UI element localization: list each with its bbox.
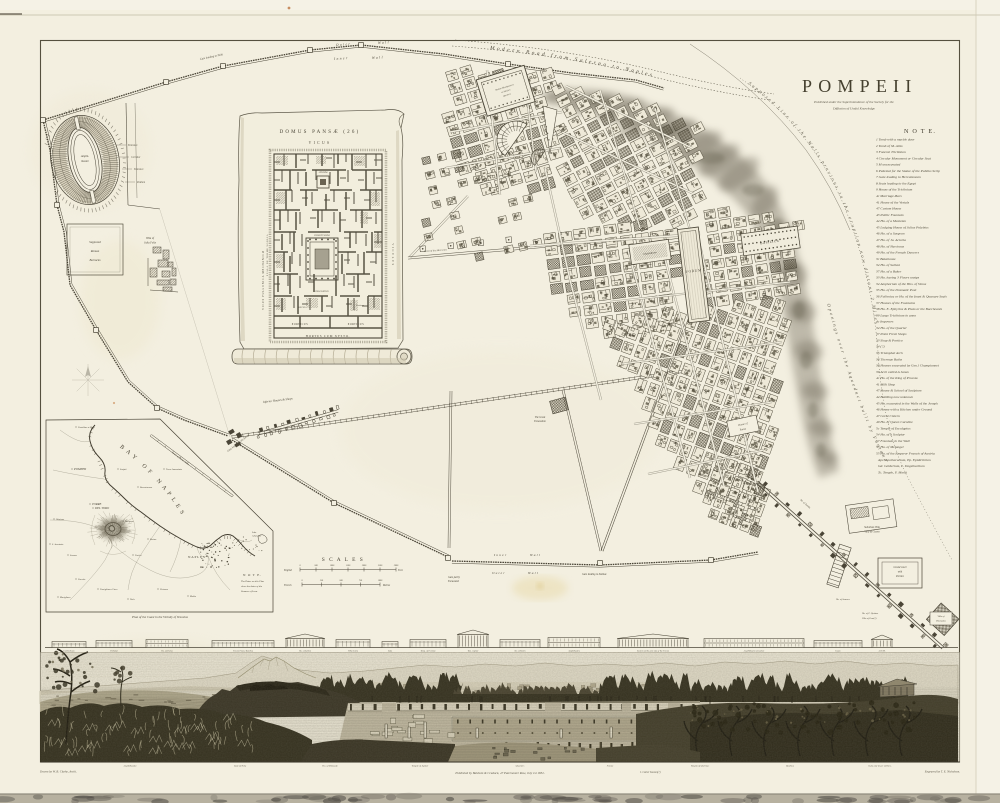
- svg-text:Posticum: Posticum: [355, 304, 365, 307]
- svg-text:theatre: theatre: [81, 160, 90, 163]
- svg-text:Somma: Somma: [70, 555, 78, 557]
- svg-text:Inner: Inner: [493, 553, 507, 557]
- svg-text:Villa of Cont(?): Villa of Cont(?): [862, 617, 877, 620]
- svg-text:Gate leading to Stabiae: Gate leading to Stabiae: [582, 573, 607, 576]
- svg-text:The Great: The Great: [535, 416, 546, 419]
- svg-text:Lake: Lake: [251, 532, 256, 534]
- svg-text:35 Triumphal Arch: 35 Triumphal Arch: [876, 351, 903, 355]
- svg-text:Temple of Jupiter: Temple of Jupiter: [412, 765, 429, 768]
- svg-text:N O T E.: N O T E.: [904, 128, 936, 135]
- svg-text:NAPLES: NAPLES: [188, 555, 206, 559]
- svg-text:Villa of: Villa of: [146, 237, 155, 240]
- svg-text:Gate of Nola: Gate of Nola: [234, 765, 247, 768]
- svg-text:VICUS: VICUS: [309, 141, 332, 145]
- svg-text:Ho. of Diomede: Ho. of Diomede: [321, 765, 337, 768]
- svg-text:Streams of Lava.: Streams of Lava.: [241, 590, 258, 593]
- svg-text:Excavated: Excavated: [447, 580, 460, 583]
- svg-text:38 Ho. E. Ephyrins & Plato or: 38 Ho. E. Ephyrins & Plato or the Bacche…: [876, 307, 943, 311]
- svg-text:34 (?): 34 (?): [876, 345, 885, 349]
- svg-text:Amphi-: Amphi-: [80, 155, 89, 158]
- svg-text:Melito: Melito: [189, 595, 197, 598]
- svg-text:SCALA DE TERME SOGLIA: SCALA DE TERME SOGLIA: [266, 234, 269, 276]
- svg-text:DOMUS PANSÆ (26): DOMUS PANSÆ (26): [280, 130, 361, 135]
- svg-text:Basilica: Basilica: [786, 765, 795, 768]
- svg-text:ATRIUM: ATRIUM: [319, 171, 328, 174]
- svg-text:47 Great Cistern: 47 Great Cistern: [876, 414, 900, 418]
- svg-text:46 Ho. of a Surgeon: 46 Ho. of a Surgeon: [876, 232, 905, 236]
- svg-text:Portico: Portico: [895, 575, 904, 578]
- svg-text:French: French: [283, 584, 292, 587]
- svg-text:34 Amphorium of the Hos. of Ve: 34 Amphorium of the Hos. of Venus: [876, 282, 927, 286]
- svg-text:N O T E.: N O T E.: [243, 573, 262, 577]
- svg-text:36 Fullonica or Ho. of the fou: 36 Fullonica or Ho. of the fount & Quana…: [876, 295, 947, 299]
- svg-text:Metres: Metres: [382, 584, 390, 587]
- svg-text:Julia Felix: Julia Felix: [144, 242, 157, 245]
- svg-text:48 Ho. of Narcissus: 48 Ho. of Narcissus: [876, 244, 905, 248]
- svg-text:46 House with a Kitchen under: 46 House with a Kitchen under Ground: [876, 408, 932, 412]
- svg-text:Excavation: Excavation: [533, 420, 546, 423]
- svg-text:English: English: [283, 569, 293, 572]
- svg-text:44 Building now unknown: 44 Building now unknown: [876, 395, 913, 399]
- svg-text:44 Ho. of a Musician: 44 Ho. of a Musician: [876, 219, 906, 223]
- svg-text:4c Marriage-Bars: 4c Marriage-Bars: [876, 194, 902, 198]
- svg-text:VICUS FULLONICA MECHANICÆ: VICUS FULLONICA MECHANICÆ: [262, 250, 265, 310]
- svg-text:OECUS: OECUS: [298, 307, 306, 309]
- svg-text:45 Ho. excavated in the Walls: 45 Ho. excavated in the Walls of the Jos…: [876, 401, 938, 405]
- svg-text:show the dates of the: show the dates of the: [241, 585, 263, 588]
- svg-text:PERISTYLIUM: PERISTYLIUM: [314, 235, 329, 237]
- svg-text:Amphitheatre: Amphitheatre: [123, 765, 137, 768]
- svg-text:37 Ho. of a Baker: 37 Ho. of a Baker: [876, 269, 902, 273]
- svg-text:Gate and tower of Herc.: Gate and tower of Herc.: [868, 765, 892, 768]
- svg-text:PORTICUS: PORTICUS: [348, 323, 364, 326]
- svg-text:DEL TORO: DEL TORO: [94, 506, 110, 510]
- svg-text:8 Seats leading to the Egypt: 8 Seats leading to the Egypt: [876, 181, 917, 185]
- svg-text:3 Funeral Triclinium: 3 Funeral Triclinium: [876, 150, 906, 154]
- svg-text:47 Ho. of Ju. Actoria: 47 Ho. of Ju. Actoria: [876, 238, 906, 242]
- svg-text:35 Ho. of the Dramatic Poet: 35 Ho. of the Dramatic Poet: [876, 288, 917, 292]
- svg-text:Grand court: Grand court: [894, 566, 907, 569]
- svg-text:9 House of the Triclinium: 9 House of the Triclinium: [876, 188, 913, 192]
- svg-text:33 Ho. having 3 Floors unstps: 33 Ho. having 3 Floors unstps: [876, 276, 920, 280]
- svg-text:Torre Annunziata: Torre Annunziata: [166, 468, 183, 471]
- svg-text:39 Arch called A Janus: 39 Arch called A Janus: [876, 370, 909, 374]
- svg-text:The Dates on this Plan: The Dates on this Plan: [241, 580, 265, 583]
- svg-text:34 Ho. of the Quarter: 34 Ho. of the Quarter: [876, 326, 907, 330]
- svg-text:38 Houses excavated by Gen.l C: 38 Houses excavated by Gen.l Championnet: [876, 364, 940, 368]
- svg-text:Wall: Wall: [528, 571, 539, 575]
- svg-text:VICULUS: VICULUS: [391, 243, 394, 266]
- svg-text:39 Large Triclinium in anno: 39 Large Triclinium in anno: [876, 313, 916, 317]
- svg-text:41 House of the Vestals: 41 House of the Vestals: [876, 200, 910, 204]
- svg-text:Diffusion of Useful Knowledge: Diffusion of Useful Knowledge: [832, 107, 875, 111]
- svg-text:PORTICUS: PORTICUS: [292, 323, 308, 326]
- svg-text:Wall: Wall: [378, 40, 390, 45]
- svg-text:Roman: Roman: [90, 249, 100, 253]
- svg-text:Cercola: Cercola: [78, 579, 86, 581]
- svg-text:J. Carter Souven(?): J. Carter Souven(?): [640, 771, 661, 774]
- svg-text:HORTUS CUM XYSTO.: HORTUS CUM XYSTO.: [306, 334, 350, 338]
- svg-text:Cisterna: Cisterna: [160, 588, 169, 591]
- svg-text:6 Pedestal for the Statue of t: 6 Pedestal for the Statue of the Publius…: [876, 169, 940, 173]
- svg-text:54 Ho. of a Sculptor: 54 Ho. of a Sculptor: [876, 433, 905, 437]
- svg-text:Diomedes: Diomedes: [935, 620, 946, 623]
- svg-text:Supposed: Supposed: [89, 240, 101, 244]
- svg-text:Engraved by T. E. Nicholson.: Engraved by T. E. Nicholson.: [924, 770, 960, 774]
- svg-text:PROCOETON: PROCOETON: [315, 291, 329, 293]
- svg-text:Nola: Nola: [129, 599, 135, 601]
- svg-text:Outer: Outer: [492, 571, 506, 575]
- svg-text:49 Ho. of the Female Dancers: 49 Ho. of the Female Dancers: [876, 251, 920, 255]
- svg-text:33 Shop & Portico: 33 Shop & Portico: [876, 338, 903, 342]
- svg-text:Resina: Resina: [149, 539, 157, 541]
- svg-text:Barracks: Barracks: [90, 258, 102, 262]
- svg-text:5 M unexcavated: 5 M unexcavated: [876, 163, 900, 167]
- svg-text:POMPEII: POMPEII: [802, 76, 917, 96]
- svg-text:43 Public Fountain: 43 Public Fountain: [876, 213, 904, 217]
- svg-text:POMPEII: POMPEII: [73, 467, 87, 471]
- svg-text:Entrance: Entrance: [127, 144, 138, 147]
- svg-text:S. Anastasia: S. Anastasia: [52, 543, 64, 546]
- svg-text:Ho. of C. Quietus: Ho. of C. Quietus: [861, 612, 878, 615]
- svg-text:3c Bakehouse: 3c Bakehouse: [876, 257, 896, 261]
- svg-text:37 Houses of the Fountains: 37 Houses of the Fountains: [876, 301, 916, 305]
- svg-text:Wall: Wall: [372, 55, 384, 60]
- svg-text:47 Custom House: 47 Custom House: [876, 207, 902, 211]
- svg-text:with: with: [898, 571, 903, 574]
- svg-text:Acherusia: Acherusia: [251, 535, 262, 538]
- svg-text:1 Tomb with a marble door: 1 Tomb with a marble door: [876, 138, 915, 142]
- svg-text:Ottaiano: Ottaiano: [56, 518, 65, 521]
- svg-text:S C A L E S: S C A L E S: [322, 557, 365, 563]
- svg-text:5c Temple of Esculapius: 5c Temple of Esculapius: [876, 426, 911, 430]
- svg-text:47 House & School of Sculpture: 47 House & School of Sculpture: [876, 389, 922, 393]
- svg-text:4 Circular Monument or Circula: 4 Circular Monument or Circular Seat: [876, 156, 932, 160]
- svg-text:41 Milk Shop: 41 Milk Shop: [876, 382, 895, 386]
- svg-text:Quarters: Quarters: [516, 765, 525, 768]
- svg-text:36 Thermae Baths: 36 Thermae Baths: [876, 357, 903, 361]
- svg-text:Scafati: Scafati: [120, 468, 127, 471]
- svg-text:7 Gate leading to Herculaneum: 7 Gate leading to Herculaneum: [876, 175, 921, 179]
- svg-text:Podium: Podium: [136, 181, 145, 184]
- svg-text:Gate partly: Gate partly: [448, 576, 461, 579]
- svg-text:Forum: Forum: [606, 765, 614, 768]
- svg-text:Ho. of Scaurus: Ho. of Scaurus: [835, 598, 850, 601]
- svg-text:Castellam a Mare: Castellam a Mare: [78, 426, 95, 429]
- svg-text:Plan of the Coast in the Vicin: Plan of the Coast in the Vicinity of Ves…: [131, 615, 188, 619]
- svg-text:4c Ho. of the King of Prussia: 4c Ho. of the King of Prussia: [876, 376, 918, 380]
- svg-text:Pomigliano d Arco: Pomigliano d Arco: [99, 588, 118, 591]
- svg-text:Chiajano: Chiajano: [125, 521, 134, 523]
- svg-text:Suburban Villa: Suburban Villa: [864, 526, 880, 529]
- svg-text:Entrance: Entrance: [133, 168, 144, 171]
- svg-text:Villa of: Villa of: [938, 615, 945, 618]
- svg-text:Boscotrecase: Boscotrecase: [140, 486, 152, 489]
- svg-text:Wall: Wall: [530, 553, 541, 557]
- svg-text:Temple of Quirinus: Temple of Quirinus: [691, 765, 709, 768]
- svg-text:Published under the Superinten: Published under the Superintendence of t…: [813, 100, 894, 104]
- svg-text:34 Ho. of Sallust: 34 Ho. of Sallust: [876, 263, 901, 267]
- svg-text:Triangular: Triangular: [556, 125, 567, 128]
- svg-text:Villa of Cicero: Villa of Cicero: [864, 531, 880, 534]
- svg-text:Feet: Feet: [397, 569, 403, 572]
- svg-text:49 Ho. of Queen Caroline: 49 Ho. of Queen Caroline: [876, 420, 913, 424]
- svg-text:Forum: Forum: [556, 130, 564, 133]
- svg-text:45 Lodging House of Julius Pol: 45 Lodging House of Julius Polybius: [876, 225, 929, 229]
- svg-text:Portici: Portici: [134, 554, 142, 557]
- svg-text:2 Tomb of M. Attio: 2 Tomb of M. Attio: [876, 144, 903, 148]
- svg-text:37 Point Fresh Shops: 37 Point Fresh Shops: [876, 332, 907, 336]
- svg-text:Marigliano: Marigliano: [59, 597, 71, 599]
